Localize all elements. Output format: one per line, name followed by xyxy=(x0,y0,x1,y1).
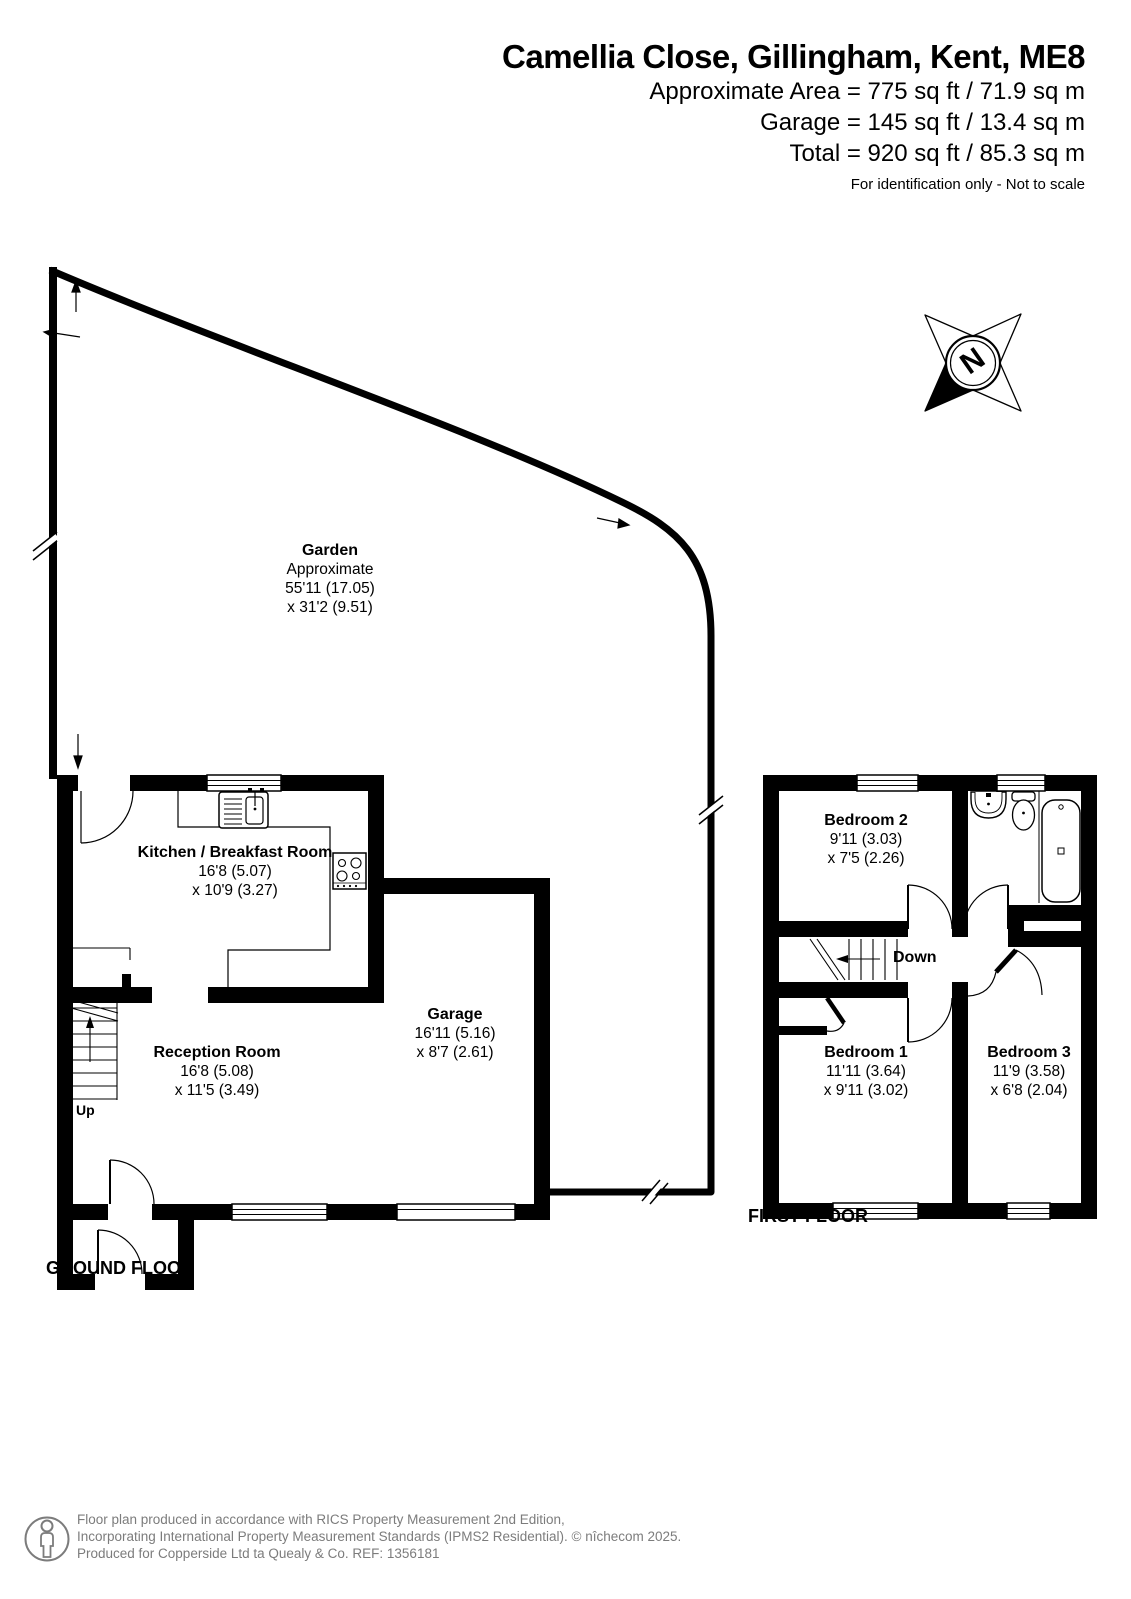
total-area: Total = 920 sq ft / 85.3 sq m xyxy=(502,139,1085,169)
footer-line-3: Produced for Copperside Ltd ta Quealy & … xyxy=(77,1545,681,1562)
footer: Floor plan produced in accordance with R… xyxy=(77,1511,681,1562)
garden-boundary xyxy=(50,267,711,1192)
basin-icon xyxy=(971,792,1006,818)
stairs-down xyxy=(810,939,897,980)
kitchen-label: Kitchen / Breakfast Room 16'8 (5.07) x 1… xyxy=(138,843,333,900)
header: Camellia Close, Gillingham, Kent, ME8 Ap… xyxy=(502,38,1085,193)
garage-label: Garage 16'11 (5.16) x 8'7 (2.61) xyxy=(414,1005,495,1062)
footer-line-2: Incorporating International Property Mea… xyxy=(77,1528,681,1545)
hob-icon xyxy=(333,853,366,889)
first-floor-label: FIRST FLOOR xyxy=(748,1206,868,1227)
bedroom1-label: Bedroom 1 11'11 (3.64) x 9'11 (3.02) xyxy=(824,1043,909,1100)
floorplan-drawing xyxy=(0,0,1131,1599)
up-label: Up xyxy=(76,1102,95,1118)
bath-icon xyxy=(1039,791,1080,903)
bedroom3-label: Bedroom 3 11'9 (3.58) x 6'8 (2.04) xyxy=(987,1043,1071,1100)
footer-line-1: Floor plan produced in accordance with R… xyxy=(77,1511,681,1528)
measurement-arrows xyxy=(44,281,629,768)
bedroom2-label: Bedroom 2 9'11 (3.03) x 7'5 (2.26) xyxy=(824,811,908,868)
approximate-area: Approximate Area = 775 sq ft / 71.9 sq m xyxy=(502,77,1085,107)
reception-label: Reception Room 16'8 (5.08) x 11'5 (3.49) xyxy=(153,1043,280,1100)
toilet-icon xyxy=(1012,792,1035,830)
garage-door xyxy=(397,1204,515,1220)
scale-disclaimer: For identification only - Not to scale xyxy=(502,176,1085,193)
ground-floor-label: GROUND FLOOR xyxy=(46,1258,194,1279)
garden-label: Garden Approximate 55'11 (17.05) x 31'2 … xyxy=(285,541,375,617)
down-label: Down xyxy=(893,949,937,967)
page-title: Camellia Close, Gillingham, Kent, ME8 xyxy=(502,38,1085,76)
person-icon xyxy=(26,1518,69,1561)
stairs-up xyxy=(64,948,130,1100)
floorplan-page: { "header": { "title": "Camellia Close, … xyxy=(0,0,1131,1599)
garage-area: Garage = 145 sq ft / 13.4 sq m xyxy=(502,108,1085,138)
sink-icon xyxy=(219,788,268,828)
